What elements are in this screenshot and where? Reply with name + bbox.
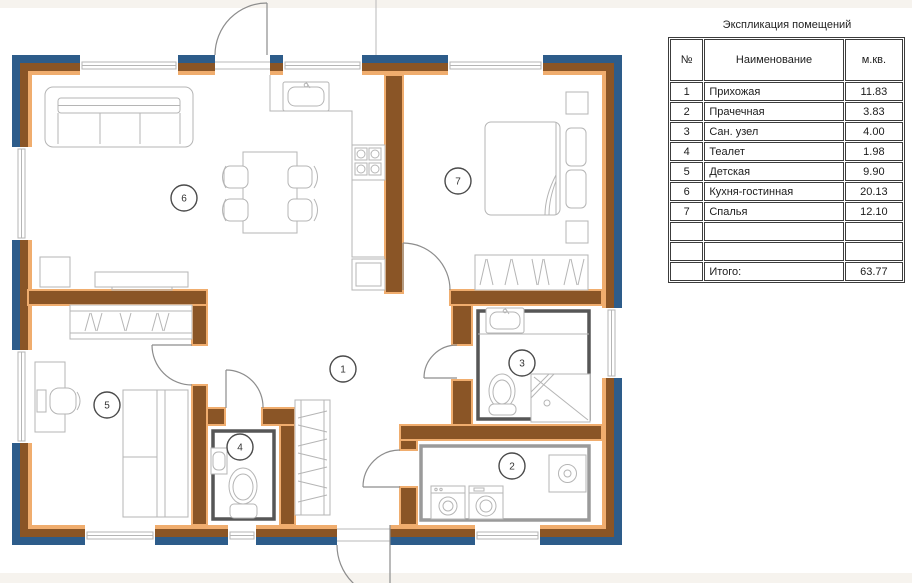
- laundry-door: [363, 450, 400, 487]
- header-area: м.кв.: [845, 39, 903, 81]
- bedroom-wardrobe: [475, 255, 588, 290]
- cell-no: [670, 242, 703, 261]
- header-name: Наименование: [704, 39, 843, 81]
- window: [230, 532, 254, 539]
- table-row: 2 Прачечная 3.83: [670, 102, 903, 121]
- boiler: [549, 455, 586, 492]
- table-row-empty: [670, 242, 903, 261]
- svg-text:2: 2: [509, 462, 515, 473]
- cell-name: Итого:: [704, 262, 843, 281]
- room-marker-5: 5: [94, 392, 120, 418]
- table-header-row: № Наименование м.кв.: [670, 39, 903, 81]
- table-row: 4 Теалет 1.98: [670, 142, 903, 161]
- cell-no: 7: [670, 202, 703, 221]
- terrace-door: [215, 3, 267, 55]
- bedroom-door: [403, 243, 450, 290]
- cell-name: [704, 222, 843, 241]
- dryer: [469, 486, 503, 519]
- window: [285, 62, 360, 69]
- table-row: 7 Спалья 12.10: [670, 202, 903, 221]
- window: [87, 532, 153, 539]
- toilet-wc: [229, 468, 257, 518]
- window: [477, 532, 538, 539]
- room-marker-4: 4: [227, 434, 253, 460]
- children-wardrobe: [70, 305, 192, 339]
- room-marker-6: 6: [171, 185, 197, 211]
- cell-area: [845, 222, 903, 241]
- svg-text:7: 7: [455, 177, 461, 188]
- nightstand: [566, 221, 588, 243]
- cell-area: 11.83: [845, 82, 903, 101]
- toilet-sink: [211, 448, 227, 474]
- fridge: [352, 259, 385, 290]
- toilet-door: [226, 370, 263, 408]
- desk-chair: [50, 388, 80, 414]
- window: [82, 62, 176, 69]
- explication-panel: Экспликация помещений № Наименование м.к…: [668, 19, 906, 283]
- cell-no: 1: [670, 82, 703, 101]
- children-room-door: [152, 345, 192, 385]
- children-sofa: [123, 390, 188, 517]
- bathroom-wc: [489, 374, 516, 415]
- cell-no: 5: [670, 162, 703, 181]
- table-row-empty: [670, 222, 903, 241]
- kitchen-sink: [283, 82, 329, 111]
- sofa: [45, 87, 193, 147]
- cell-area: 12.10: [845, 202, 903, 221]
- window: [450, 62, 541, 69]
- cell-area: 3.83: [845, 102, 903, 121]
- cell-name: Кухня-гостинная: [704, 182, 843, 201]
- cell-no: 6: [670, 182, 703, 201]
- shower: [531, 374, 590, 422]
- window: [18, 352, 25, 441]
- svg-text:5: 5: [104, 401, 110, 412]
- cell-no: 2: [670, 102, 703, 121]
- cell-area: [845, 242, 903, 261]
- cell-name: Детская: [704, 162, 843, 181]
- svg-text:1: 1: [340, 365, 346, 376]
- cell-area: 9.90: [845, 162, 903, 181]
- explication-title: Экспликация помещений: [668, 19, 906, 31]
- cell-name: Прачечная: [704, 102, 843, 121]
- floor-plan-drawing: 1 2 3 4 5 6 7: [0, 0, 660, 583]
- nightstand: [566, 92, 588, 114]
- table-row: 5 Детская 9.90: [670, 162, 903, 181]
- cell-area: 63.77: [845, 262, 903, 281]
- cell-name: [704, 242, 843, 261]
- svg-text:3: 3: [519, 359, 525, 370]
- table-row: 1 Прихожая 11.83: [670, 82, 903, 101]
- dining-table: [243, 152, 297, 233]
- room-marker-3: 3: [509, 350, 535, 376]
- cell-no: [670, 222, 703, 241]
- svg-text:6: 6: [181, 194, 187, 205]
- side-table: [40, 257, 70, 287]
- room-marker-2: 2: [499, 453, 525, 479]
- cell-name: Спалья: [704, 202, 843, 221]
- table-row-total: Итого: 63.77: [670, 262, 903, 281]
- room-marker-7: 7: [445, 168, 471, 194]
- bathroom-sink: [486, 308, 524, 333]
- cell-area: 4.00: [845, 122, 903, 141]
- window: [608, 310, 615, 376]
- cell-name: Сан. узел: [704, 122, 843, 141]
- explication-table: № Наименование м.кв. 1 Прихожая 11.83 2 …: [668, 37, 905, 283]
- cell-no: [670, 262, 703, 281]
- cell-name: Прихожая: [704, 82, 843, 101]
- stove: [352, 145, 385, 180]
- window: [18, 149, 25, 238]
- cell-name: Теалет: [704, 142, 843, 161]
- cell-area: 1.98: [845, 142, 903, 161]
- cell-no: 3: [670, 122, 703, 141]
- header-no: №: [670, 39, 703, 81]
- bathroom-door: [424, 345, 457, 378]
- table-row: 6 Кухня-гостинная 20.13: [670, 182, 903, 201]
- cell-no: 4: [670, 142, 703, 161]
- svg-text:4: 4: [237, 443, 243, 454]
- washing-machine: [431, 486, 465, 519]
- room-marker-1: 1: [330, 356, 356, 382]
- floor-plan-page: 1 2 3 4 5 6 7 Экспликация помещений № На…: [0, 0, 912, 583]
- cell-area: 20.13: [845, 182, 903, 201]
- hallway-closet: [295, 400, 330, 515]
- tv-stand: [95, 272, 188, 290]
- table-row: 3 Сан. узел 4.00: [670, 122, 903, 141]
- bed: [485, 122, 586, 215]
